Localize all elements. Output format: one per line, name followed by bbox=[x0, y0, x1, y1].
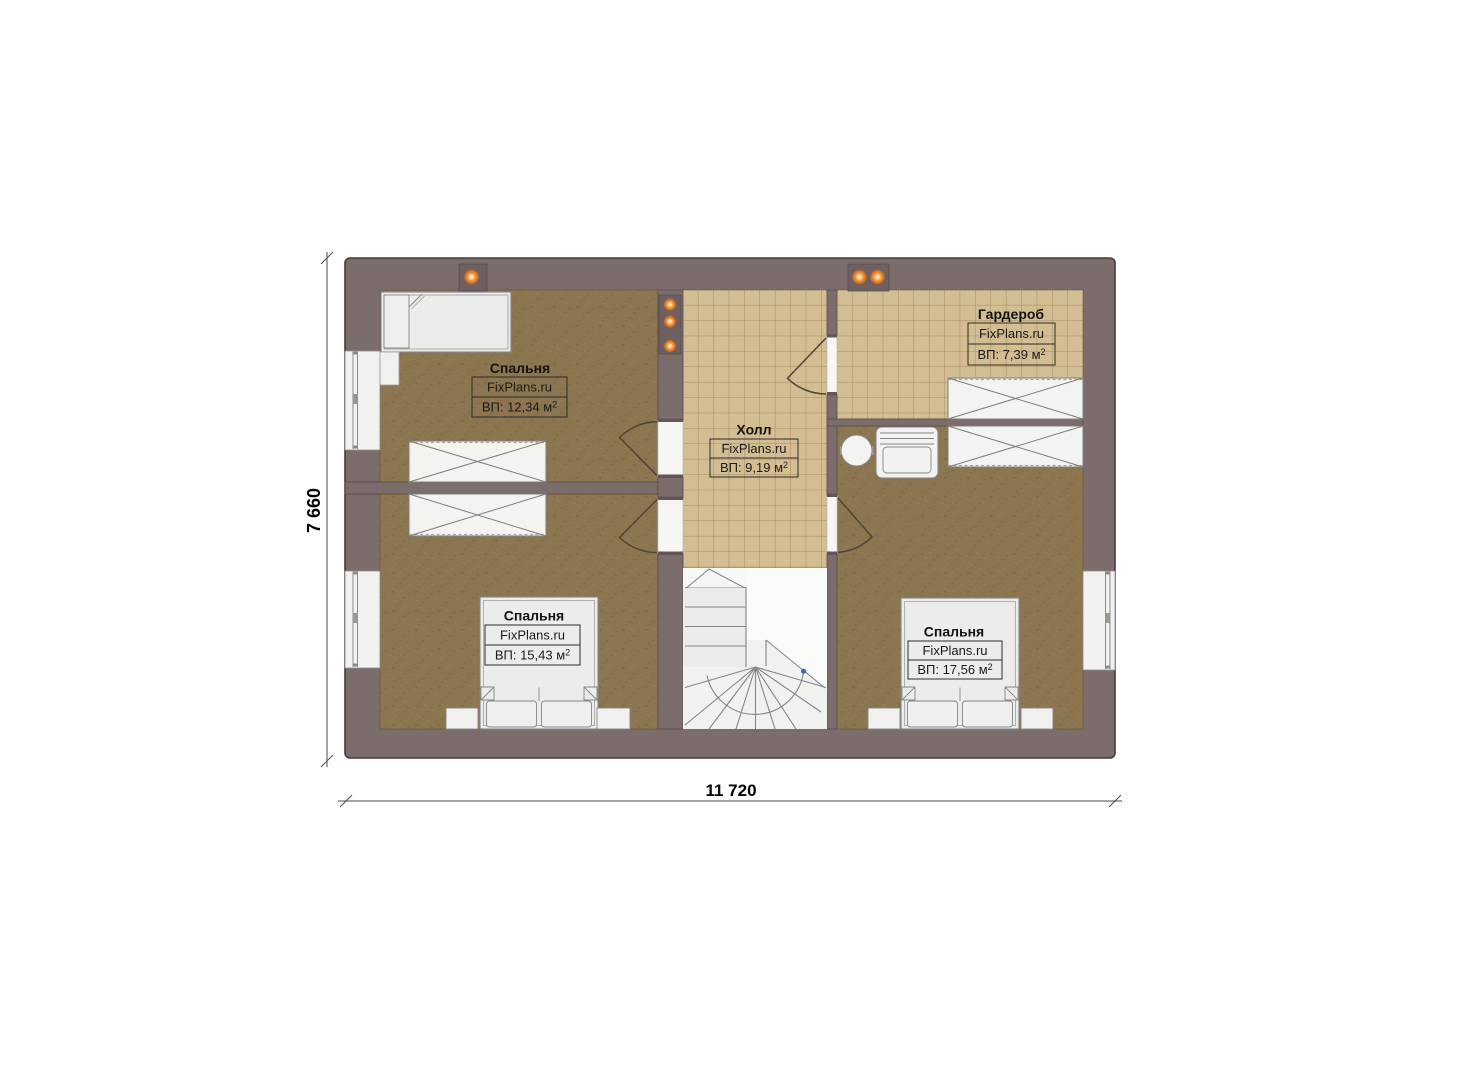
svg-text:FixPlans.ru: FixPlans.ru bbox=[721, 441, 786, 456]
svg-text:Холл: Холл bbox=[736, 422, 771, 438]
svg-text:ВП: 15,43 м2: ВП: 15,43 м2 bbox=[495, 648, 570, 663]
svg-text:FixPlans.ru: FixPlans.ru bbox=[922, 643, 987, 658]
svg-text:ВП: 7,39 м2: ВП: 7,39 м2 bbox=[977, 347, 1045, 362]
svg-text:Спальня: Спальня bbox=[924, 624, 984, 640]
svg-text:7 660: 7 660 bbox=[304, 488, 324, 533]
svg-text:ВП: 12,34 м2: ВП: 12,34 м2 bbox=[482, 400, 557, 415]
svg-text:FixPlans.ru: FixPlans.ru bbox=[500, 628, 565, 643]
svg-text:Спальня: Спальня bbox=[504, 608, 564, 624]
svg-text:FixPlans.ru: FixPlans.ru bbox=[487, 380, 552, 395]
svg-text:Спальня: Спальня bbox=[490, 360, 550, 376]
svg-text:11 720: 11 720 bbox=[705, 781, 756, 800]
svg-text:ВП: 9,19 м2: ВП: 9,19 м2 bbox=[720, 460, 788, 475]
svg-text:ВП: 17,56 м2: ВП: 17,56 м2 bbox=[917, 662, 992, 677]
svg-text:Гардероб: Гардероб bbox=[978, 306, 1045, 322]
svg-text:FixPlans.ru: FixPlans.ru bbox=[979, 326, 1044, 341]
